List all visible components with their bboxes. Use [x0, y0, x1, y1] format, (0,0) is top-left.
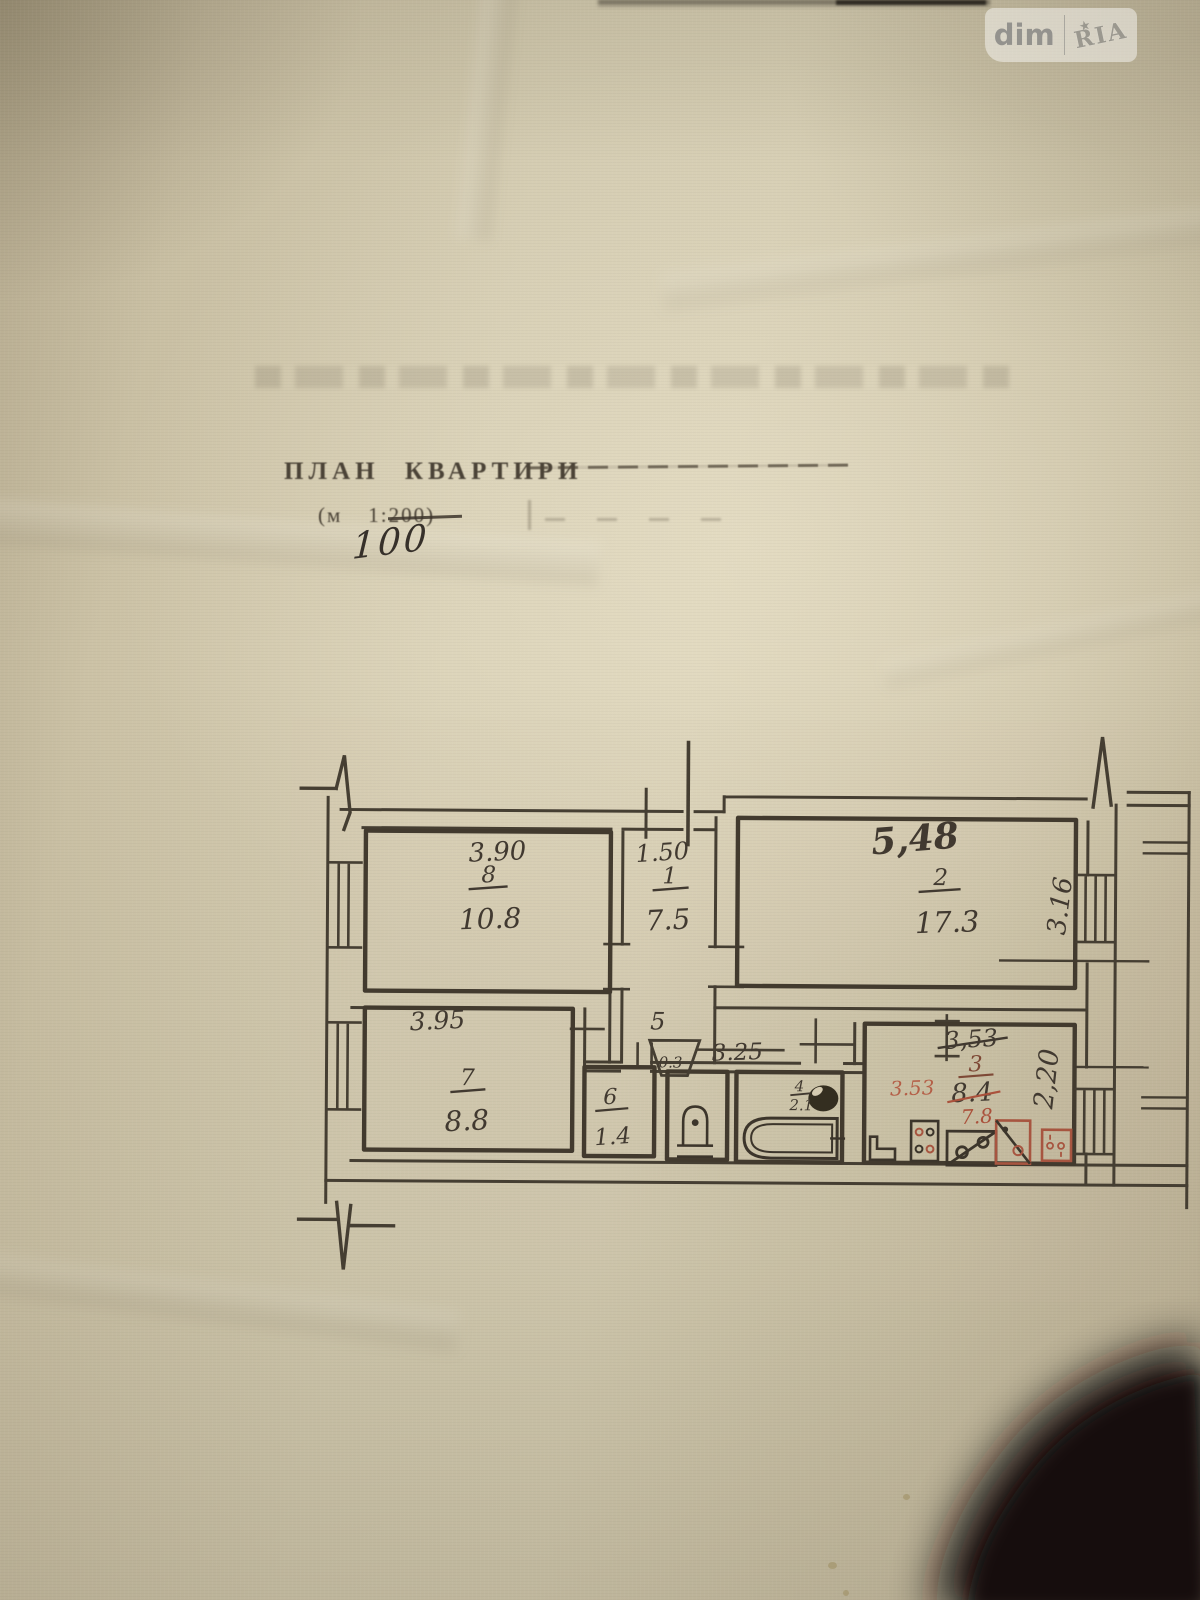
- dim-ria-watermark: dim ★ RIA: [985, 8, 1137, 62]
- floor-plan-drawing: 3.90 8 10.8 1.50 1 7.5 5,48 2 17.3 3.16 …: [0, 0, 1200, 1600]
- watermark-dim-label: dim: [985, 18, 1064, 52]
- paper-stain: [903, 1494, 910, 1500]
- paper-stain: [828, 1562, 837, 1569]
- photographed-floor-plan-document: ПЛАН КВАРТИРИ (м1:200) 100: [0, 0, 1200, 1600]
- paper-stain: [843, 1590, 849, 1596]
- camera-shadow: [932, 1340, 1200, 1600]
- plan-tint: [288, 717, 1200, 1303]
